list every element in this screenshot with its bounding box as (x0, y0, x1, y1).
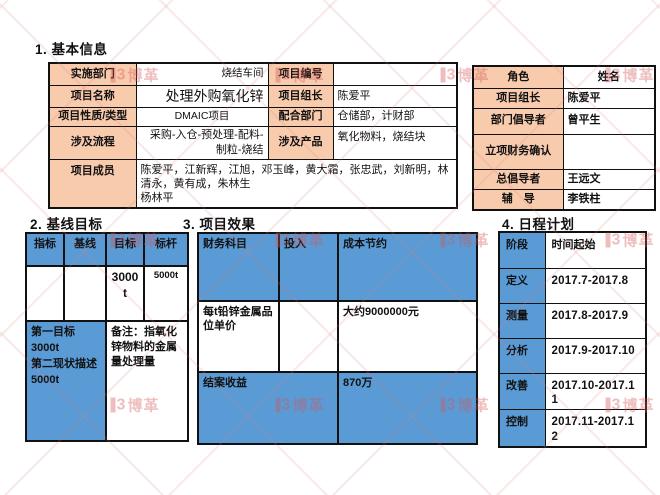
effects-header-saving: 成本节约 (338, 233, 477, 301)
effects-closing-label: 结案收益 (198, 372, 338, 444)
project-no-value (333, 63, 457, 85)
schedule-time: 2017.10-2017.11 (545, 373, 646, 410)
basic-info-table: 实施部门 烧结车间 项目编号 项目名称 处理外购氧化锌 项目组长 陈爱平 项目性… (48, 62, 458, 209)
coop-dept-value: 仓储部，计财部 (333, 107, 457, 126)
effects-item-name: 每t铅锌金属品位单价 (198, 301, 279, 372)
schedule-phase: 控制 (499, 410, 545, 447)
project-name-label: 项目名称 (49, 85, 136, 107)
leader-value: 陈爱平 (333, 85, 457, 107)
effects-item-saving: 大约9000000元 (338, 301, 477, 372)
role-label: 部门倡导者 (473, 108, 563, 134)
project-name-value: 处理外购氧化锌 (136, 85, 268, 107)
effects-closing-value: 870万 (338, 372, 477, 444)
schedule-phase: 测量 (499, 303, 545, 338)
type-label: 项目性质/类型 (49, 107, 136, 126)
role-name: 曾平生 (563, 108, 655, 134)
baseline-header-baseline: 基线 (64, 233, 106, 266)
product-label: 涉及产品 (268, 126, 333, 159)
role-label: 总倡导者 (473, 169, 563, 189)
product-value: 氧化物料，烧结块 (333, 126, 457, 159)
role-name: 陈爱平 (563, 88, 655, 108)
schedule-time: 2017.9-2017.10 (545, 338, 646, 373)
role-label: 立项财务确认 (473, 134, 563, 169)
baseline-note-text: 备注：指氧化锌物料的金属量处理量 (106, 321, 188, 441)
schedule-phase: 分析 (499, 338, 545, 373)
project-no-label: 项目编号 (268, 63, 333, 85)
baseline-goal-text: 第一目标 3000t 第二现状描述 5000t (26, 321, 106, 441)
effects-header-account: 财务科目 (198, 233, 279, 301)
type-value: DMAIC项目 (136, 107, 268, 126)
name-column-header: 姓名 (563, 66, 655, 88)
baseline-benchmark-value: 5000t (144, 266, 188, 321)
impl-dept-value: 烧结车间 (136, 63, 268, 85)
schedule-time: 2017.7-2017.8 (545, 268, 646, 303)
role-column-header: 角色 (473, 66, 563, 88)
process-label: 涉及流程 (49, 126, 136, 159)
leader-label: 项目组长 (268, 85, 333, 107)
role-name: 王远文 (563, 169, 655, 189)
baseline-indicator-value (26, 266, 64, 321)
effects-header-invest: 投入 (279, 233, 338, 301)
section-heading-schedule: 4. 日程计划 (502, 213, 575, 233)
schedule-phase: 定义 (499, 268, 545, 303)
roles-table: 角色 姓名 项目组长 陈爱平 部门倡导者 曾平生 立项财务确认 总倡导者 王远文… (472, 65, 656, 211)
schedule-header-time: 时间起始 (545, 232, 646, 268)
baseline-header-target: 目标 (106, 233, 144, 266)
baseline-header-indicator: 指标 (26, 233, 64, 266)
role-name: 李铁柱 (563, 189, 655, 210)
baseline-header-benchmark: 标杆 (144, 233, 188, 266)
project-charter-slide: 1. 基本信息 2. 基线目标 3. 项目效果 4. 日程计划 实施部门 烧结车… (0, 0, 660, 495)
section-heading-effects: 3. 项目效果 (183, 213, 256, 233)
role-label: 辅 导 (473, 189, 563, 210)
effects-item-invest (279, 301, 338, 372)
schedule-phase: 改善 (499, 373, 545, 410)
schedule-table: 阶段 时间起始 定义 2017.7-2017.8 测量 2017.8-2017.… (498, 231, 647, 448)
schedule-time: 2017.8-2017.9 (545, 303, 646, 338)
members-value: 陈爱平，江新辉，江旭，邓玉峰，黄大霜，张忠武，刘新明，林清永，黄有成，朱林生 杨… (136, 159, 457, 208)
section-heading-basic-info: 1. 基本信息 (35, 38, 108, 58)
schedule-time: 2017.11-2017.12 (545, 410, 646, 447)
role-name (563, 134, 655, 169)
coop-dept-label: 配合部门 (268, 107, 333, 126)
members-label: 项目成员 (49, 159, 136, 208)
process-value: 采购-入仓-预处理-配料-制粒-烧结 (136, 126, 268, 159)
impl-dept-label: 实施部门 (49, 63, 136, 85)
effects-table: 财务科目 投入 成本节约 每t铅锌金属品位单价 大约9000000元 结案收益 … (197, 232, 478, 445)
schedule-header-phase: 阶段 (499, 232, 545, 268)
baseline-table: 指标 基线 目标 标杆 3000t 5000t 第一目标 3000t 第二现状描… (25, 232, 189, 442)
role-label: 项目组长 (473, 88, 563, 108)
section-heading-baseline: 2. 基线目标 (30, 213, 103, 233)
baseline-baseline-value (64, 266, 106, 321)
baseline-target-value: 3000t (106, 266, 144, 321)
